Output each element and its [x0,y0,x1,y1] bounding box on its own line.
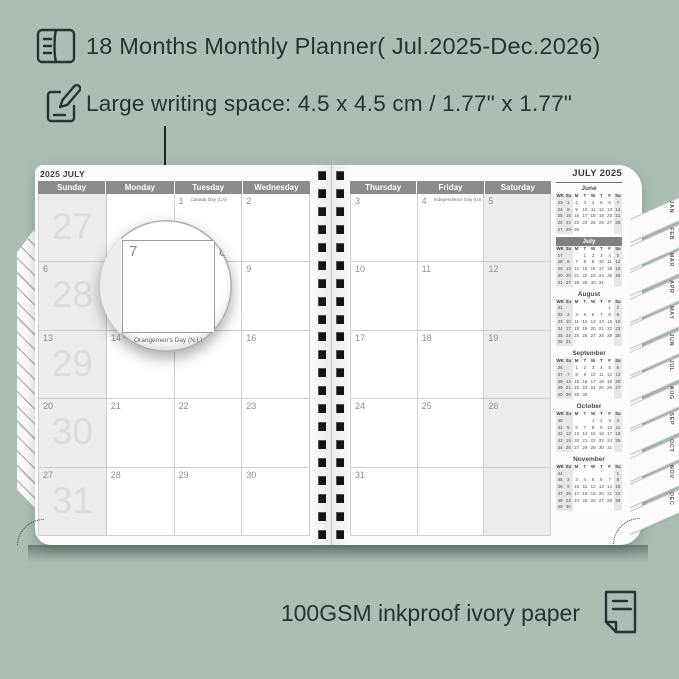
month-tab-label: DEC [668,489,674,507]
mini-date-cell: 27 [614,385,622,392]
mini-header-cell: T [597,411,605,418]
mini-header-cell: W [589,299,597,306]
mini-header-cell: M [573,464,581,471]
week-number-watermark: 27 [39,206,106,248]
punch-hole [318,243,326,252]
mini-date-cell [573,471,581,478]
page-stack-edge [17,227,36,509]
month-tab-label: AUG [668,383,674,401]
mini-header-cell: F [606,411,614,418]
mini-date-cell: 20 [564,273,572,280]
mini-date-cell: 23 [556,200,564,207]
week-number-watermark: 28 [39,274,106,316]
mini-date-cell: 15 [581,266,589,273]
mini-date-cell: 13 [573,431,581,438]
mini-date-cell: 9 [581,372,589,379]
date-number: 10 [355,264,365,274]
mini-date-cell: 22 [589,438,597,445]
mini-date-cell [597,471,605,478]
mini-date-cell: 28 [614,220,622,227]
mini-header-cell: Sa [614,193,622,200]
mini-date-cell [564,365,572,372]
date-cell [484,468,551,536]
mini-header-cell: Su [564,411,572,418]
mini-date-cell [581,471,589,478]
mini-date-cell: 23 [573,220,581,227]
mini-date-cell [573,253,581,260]
punch-hole [318,530,326,539]
mini-header-cell: T [581,411,589,418]
date-cell: 3 [351,194,418,262]
punch-hole [336,207,344,216]
month-tab-label: FEB [668,224,674,242]
punch-hole [336,404,344,413]
punch-hole [336,368,344,377]
mini-header-cell: M [573,411,581,418]
mini-date-cell: 31 [564,339,572,346]
mini-date-cell: 27 [556,227,564,234]
mini-date-cell: 42 [556,431,564,438]
mini-date-cell: 1 [564,200,572,207]
mini-calendar-week-row: 231234567 [556,200,622,207]
mini-date-cell: 24 [589,385,597,392]
date-number: 28 [111,470,121,480]
mini-header-cell: T [597,358,605,365]
mini-calendar: OctoberWKSuMTWTFSa4012344156789101142121… [556,402,622,452]
mini-date-cell: 7 [581,425,589,432]
date-cell: 16 [242,331,310,399]
mini-date-cell: 9 [614,312,622,319]
month-tab-label: OCT [668,436,674,454]
mini-date-cell: 26 [581,333,589,340]
date-number: 25 [422,401,432,411]
mini-date-cell: 10 [564,319,572,326]
mini-date-cell: 28 [573,280,581,287]
mini-date-cell: 18 [606,266,614,273]
mini-date-cell: 17 [581,213,589,220]
punch-hole [318,261,326,270]
punch-hole [318,207,326,216]
mini-date-cell [573,339,581,346]
mini-date-cell: 28 [556,259,564,266]
mini-date-cell [589,305,597,312]
mini-date-cell: 18 [614,431,622,438]
mini-date-cell [589,504,597,511]
mini-date-cell [614,227,622,234]
mini-date-cell: 24 [564,333,572,340]
mini-date-cell: 24 [597,273,605,280]
month-tab-label: JAN [668,198,674,216]
mini-calendar-header-row: WKSuMTWTFSa [556,358,622,365]
punch-hole [336,171,344,180]
mini-calendar-header-row: WKSuMTWTFSa [556,411,622,418]
mini-calendar-week-row: 4716171819202122 [556,491,622,498]
date-cell: 17 [351,331,418,399]
mini-date-cell: 29 [556,266,564,273]
punch-hole [318,422,326,431]
mini-date-cell: 3 [573,477,581,484]
mini-calendar: NovemberWKSuMTWTFSa441452345678469101112… [556,455,622,512]
punch-hole [336,386,344,395]
mini-date-cell [564,305,572,312]
mini-header-cell: Sa [614,411,622,418]
mini-date-cell: 6 [606,200,614,207]
mini-date-cell: 20 [614,379,622,386]
date-cell: 3127 [39,468,107,536]
date-cell: 9 [242,262,310,330]
punch-hole [336,261,344,270]
punch-hole [336,458,344,467]
mini-calendar-title: June [556,184,622,193]
mini-calendar-header-row: WKSuMTWTFSa [556,464,622,471]
mini-date-cell: 25 [597,385,605,392]
mini-date-cell: 5 [581,312,589,319]
mini-date-cell [589,339,597,346]
mini-date-cell: 3 [589,365,597,372]
mini-date-cell [589,471,597,478]
mini-date-cell [606,504,614,511]
weekday-header: Saturday [485,181,551,194]
mini-date-cell: 17 [564,326,572,333]
mini-date-cell: 19 [614,266,622,273]
mini-date-cell [614,280,622,287]
mini-date-cell: 19 [597,213,605,220]
mini-header-cell: W [589,464,597,471]
month-tab-label: NOV [668,463,674,481]
week-row: 3127282930 [38,468,310,536]
mini-header-cell: T [581,358,589,365]
mini-calendar-week-row: 3417181920212223 [556,326,622,333]
mini-date-cell [564,418,572,425]
mini-date-cell: 28 [597,333,605,340]
mini-header-cell: T [597,193,605,200]
weekday-header: Tuesday [175,181,243,194]
date-cell: 25 [418,399,485,467]
date-cell: 19 [484,331,551,399]
mini-date-cell: 17 [573,491,581,498]
punch-hole [318,440,326,449]
mini-date-cell: 27 [589,333,597,340]
mini-date-cell: 39 [556,385,564,392]
mini-date-cell [589,392,597,399]
mini-date-cell: 7 [564,372,572,379]
mini-date-cell: 20 [597,491,605,498]
mini-date-cell: 5 [614,253,622,260]
date-cell: 5 [484,194,551,262]
mini-date-cell: 14 [581,431,589,438]
mini-date-cell: 11 [589,207,597,214]
mini-date-cell: 23 [589,273,597,280]
mini-date-cell: 15 [614,484,622,491]
week-row: 171819 [350,331,551,399]
date-cell: 10 [351,262,418,330]
month-tab-label: MAR [668,251,674,269]
mini-calendar-week-row: 41567891011 [556,425,622,432]
mini-calendar-week-row: 286789101112 [556,259,622,266]
mini-date-cell: 33 [556,319,564,326]
mini-date-cell: 30 [589,280,597,287]
mini-calendar-title: July [556,237,622,246]
mini-date-cell: 27 [564,280,572,287]
mini-date-cell: 16 [581,379,589,386]
mini-date-cell: 30 [597,445,605,452]
punch-hole [336,530,344,539]
mini-header-cell: Sa [614,246,622,253]
mini-date-cell [581,418,589,425]
month-tab-label: APR [668,277,674,295]
mini-calendar-header-row: WKSuMTWTFSa [556,193,622,200]
mini-date-cell: 26 [614,273,622,280]
month-tab-label: SEP [668,410,674,428]
mini-date-cell: 7 [597,312,605,319]
mini-date-cell: 10 [581,207,589,214]
mini-calendar-week-row: 24891011121314 [556,207,622,214]
mini-date-cell: 24 [581,220,589,227]
mini-date-cell [597,504,605,511]
mini-header-cell: Su [564,358,572,365]
week-number-watermark: 30 [39,411,106,453]
mini-date-cell: 13 [606,207,614,214]
mini-date-cell: 5 [597,200,605,207]
punch-hole [336,315,344,324]
mini-calendar-title: September [556,349,622,358]
week-row: 242526 [350,399,551,467]
mini-date-cell: 23 [564,498,572,505]
magnified-below-date: 14 [106,330,117,341]
punch-hole [336,350,344,359]
date-number: 26 [488,401,498,411]
mini-date-cell: 14 [614,207,622,214]
punch-hole [318,404,326,413]
mini-header-cell: T [597,464,605,471]
mini-date-cell: 14 [573,266,581,273]
mini-header-cell: W [589,411,597,418]
punch-hole [336,440,344,449]
mini-calendar-week-row: 4319202122232425 [556,438,622,445]
mini-date-cell: 30 [564,504,572,511]
date-number: 24 [355,401,365,411]
mini-date-cell: 20 [573,438,581,445]
mini-date-cell: 8 [573,372,581,379]
month-tab-strip: JANFEBMARAPRMAYJUNJULAUGSEPOCTNOVDEC [630,165,679,545]
mini-date-cell [597,392,605,399]
mini-date-cell: 23 [614,326,622,333]
mini-calendar-week-row: 2515161718192021 [556,213,622,220]
mini-date-cell: 11 [597,372,605,379]
product-image: 18 Months Monthly Planner( Jul.2025-Dec.… [0,0,679,679]
week-row: 101112 [350,262,551,330]
mini-date-cell [573,305,581,312]
mini-header-cell: Sa [614,464,622,471]
mini-date-cell: 8 [564,207,572,214]
binding-crease [331,165,332,545]
date-cell: 26 [484,399,551,467]
mini-date-cell: 13 [589,319,597,326]
mini-date-cell: 14 [606,484,614,491]
mini-date-cell: 25 [606,273,614,280]
product-feature-paper: 100GSM inkproof ivory paper [281,600,580,627]
mini-date-cell: 49 [556,504,564,511]
date-number: 29 [179,470,189,480]
mini-date-cell: 2 [573,200,581,207]
date-number: 2 [246,196,251,206]
date-number: 23 [246,401,256,411]
punch-hole [318,458,326,467]
punch-hole [336,279,344,288]
mini-date-cell [589,227,597,234]
mini-date-cell: 25 [589,220,597,227]
mini-date-cell: 29 [581,280,589,287]
mini-date-cell [606,392,614,399]
mini-date-cell: 31 [597,280,605,287]
mini-date-cell: 6 [597,477,605,484]
date-number: 17 [355,333,365,343]
mini-date-cell: 15 [606,319,614,326]
mini-date-cell [581,227,589,234]
mini-date-cell: 30 [614,333,622,340]
mini-date-cell: 27 [606,220,614,227]
mini-date-cell [614,339,622,346]
mini-date-cell [597,227,605,234]
mini-header-cell: T [581,246,589,253]
date-number: 16 [246,333,256,343]
mini-date-cell: 21 [614,213,622,220]
date-cell: 30 [242,468,310,536]
week-row: 34Independence Day (US)5 [350,194,551,262]
mini-date-cell: 18 [573,326,581,333]
mini-date-cell: 27 [556,253,564,260]
mini-date-cell: 16 [564,491,572,498]
mini-calendar-week-row: 3921222324252627 [556,385,622,392]
mini-date-cell: 36 [556,365,564,372]
punch-hole [318,476,326,485]
mini-date-cell: 9 [589,259,597,266]
date-cell: 29 [175,468,243,536]
mini-date-cell: 29 [573,392,581,399]
page-drop-shadow [28,545,648,562]
mini-date-cell: 22 [606,326,614,333]
mini-header-cell: F [606,358,614,365]
right-page-title: JULY 2025 [556,168,622,183]
magnified-adjacent-date: 8 [219,243,227,260]
mini-header-cell: W [589,358,597,365]
mini-date-cell: 10 [597,259,605,266]
punch-holes-left [318,171,326,539]
punch-hole [318,225,326,234]
magnifier-circle: 7 8 14 Orangemen's Day (N.I.) [100,220,232,352]
mini-date-cell: 21 [597,326,605,333]
right-month-grid: ThursdayFridaySaturday34Independence Day… [350,181,551,536]
mini-date-cell [606,471,614,478]
mini-date-cell [581,339,589,346]
punch-hole [318,350,326,359]
date-number: 5 [488,196,493,206]
mini-date-cell: 15 [573,379,581,386]
mini-calendar-week-row: 3020212223242526 [556,273,622,280]
mini-date-cell: 12 [597,207,605,214]
mini-calendar-week-row: 4823242526272829 [556,498,622,505]
mini-calendar-week-row: 4930 [556,504,622,511]
punch-hole [318,297,326,306]
mini-date-cell [564,253,572,260]
mini-date-cell: 22 [564,220,572,227]
mini-header-cell: F [606,299,614,306]
mini-calendar-week-row: 36123456 [556,365,622,372]
mini-calendar: SeptemberWKSuMTWTFSa36123456377891011121… [556,349,622,399]
week-number-watermark: 31 [39,480,106,522]
mini-date-cell: 44 [556,445,564,452]
mini-date-cell: 16 [573,213,581,220]
weekday-header-row: ThursdayFridaySaturday [350,181,551,194]
mini-header-cell: Su [564,193,572,200]
date-number: 18 [422,333,432,343]
weekday-header: Monday [106,181,174,194]
week-number-watermark: 29 [39,343,106,385]
punch-hole [318,332,326,341]
mini-date-cell: 27 [597,498,605,505]
mini-date-cell: 7 [573,259,581,266]
mini-date-cell [581,504,589,511]
mini-date-cell: 31 [606,445,614,452]
mini-calendar-week-row: 3814151617181920 [556,379,622,386]
mini-date-cell: 10 [606,425,614,432]
punch-hole [336,332,344,341]
mini-header-cell: Sa [614,358,622,365]
mini-header-cell: Sa [614,299,622,306]
mini-date-cell [564,471,572,478]
mini-header-cell: M [573,246,581,253]
mini-calendar-week-row: 452345678 [556,477,622,484]
mini-date-cell: 5 [589,477,597,484]
mini-date-cell: 3 [606,418,614,425]
mini-date-cell: 37 [556,372,564,379]
mini-date-cell [597,305,605,312]
punch-hole [336,512,344,521]
mini-date-cell: 17 [597,266,605,273]
date-number: 4 [422,196,427,206]
mini-header-cell: T [581,299,589,306]
mini-date-cell: 18 [597,379,605,386]
mini-date-cell: 40 [556,418,564,425]
mini-date-cell: 45 [556,477,564,484]
mini-date-cell: 30 [556,273,564,280]
mini-calendar: JulyWKSuMTWTFSa2712345286789101112291314… [556,237,622,287]
mini-date-cell: 11 [614,425,622,432]
date-cell: 28 [107,468,175,536]
mini-calendar-week-row: 2622232425262728 [556,220,622,227]
punch-hole [318,368,326,377]
mini-calendar-week-row: 441 [556,471,622,478]
mini-date-cell: 26 [606,385,614,392]
mini-date-cell: 28 [564,392,572,399]
mini-date-cell: 7 [614,200,622,207]
mini-calendar-sidebar: JuneWKSuMTWTFSa2312345672489101112131425… [556,184,622,514]
mini-calendar-week-row: 323456789 [556,312,622,319]
mini-date-cell: 34 [556,326,564,333]
date-number: 20 [43,401,53,411]
mini-calendar-title: August [556,290,622,299]
mini-date-cell: 6 [573,425,581,432]
mini-date-cell [573,504,581,511]
mini-date-cell: 12 [589,484,597,491]
mini-header-cell: WK [556,246,564,253]
mini-header-cell: M [573,193,581,200]
mini-date-cell: 26 [597,220,605,227]
mini-date-cell: 6 [564,259,572,266]
mini-date-cell: 29 [606,333,614,340]
mini-header-cell: Su [564,464,572,471]
date-number: 3 [355,196,360,206]
